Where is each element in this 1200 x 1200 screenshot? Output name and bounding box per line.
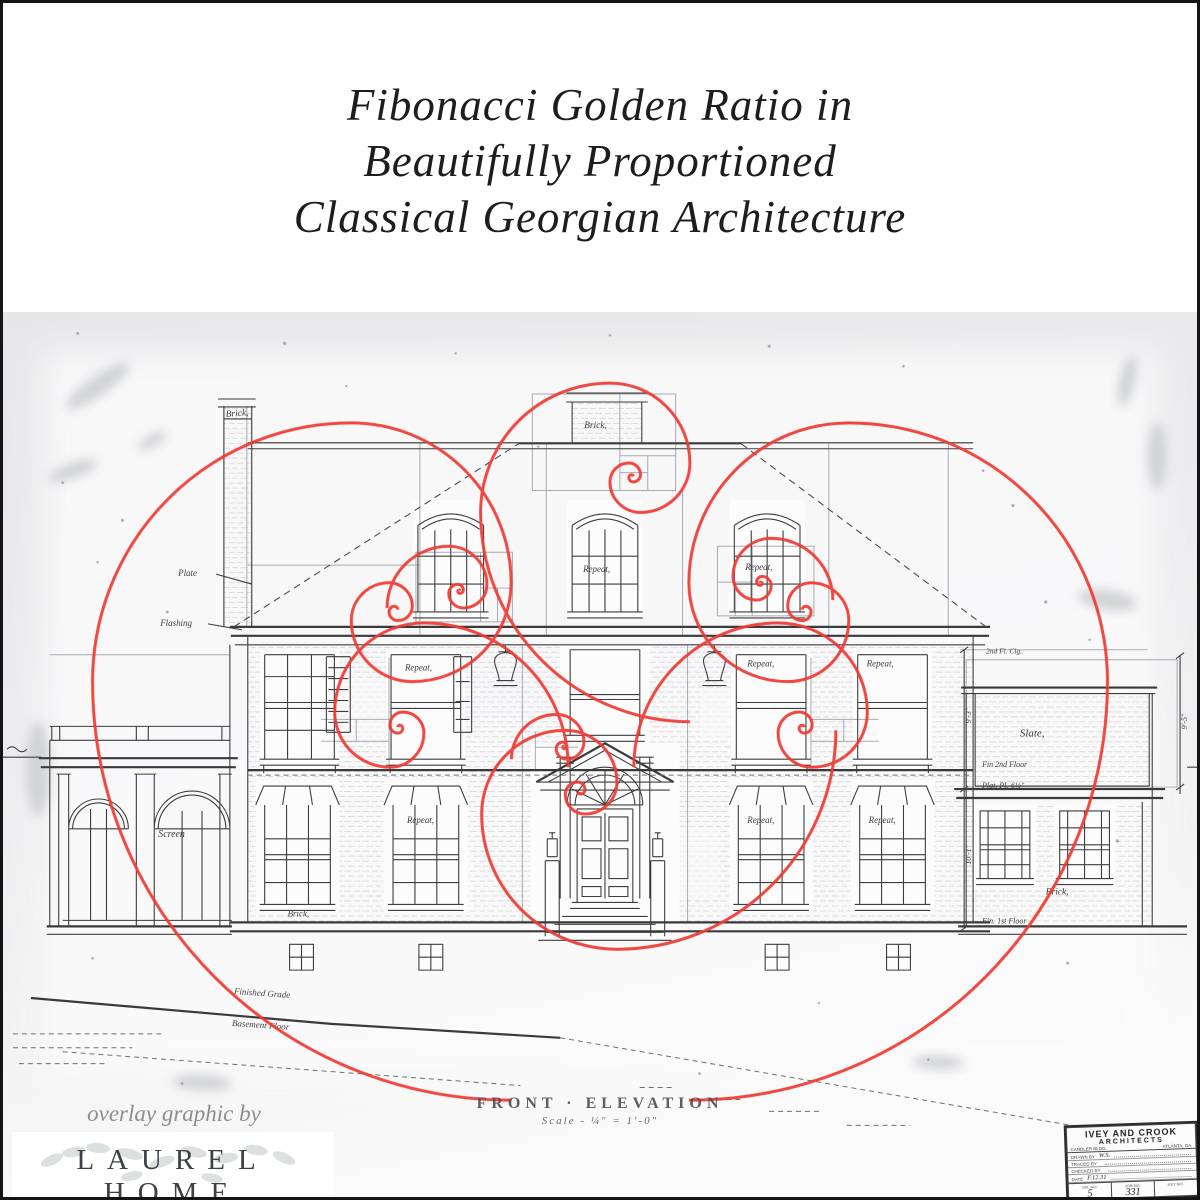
title-line-2: Beautifully Proportioned <box>3 133 1197 189</box>
stamp-cell: KEY NO. <box>1155 1180 1197 1196</box>
laurel-home-logo: LAUREL HOME INTERIOR DESIGN | INSPIRATIO… <box>12 1132 333 1197</box>
label-screen: Screen <box>158 829 185 840</box>
stamp-cell: DR. NO. 5 <box>1069 1183 1112 1199</box>
stamp-cell: JOB NO. 331 <box>1112 1181 1155 1197</box>
label-brick-chimney: Brick, <box>225 408 248 420</box>
stamp-cell-label: KEY NO. <box>1168 1181 1184 1187</box>
stamp-number-cells: DR. NO. 5 JOB NO. 331 KEY NO. <box>1069 1179 1197 1199</box>
label-plat-pl: Plat. Pl.-6½" <box>981 781 1025 790</box>
label-brick-center-chimney: Brick, <box>584 421 607 431</box>
label-repeat: Repeat, <box>746 659 774 669</box>
label-2nd-fl-clg: 2nd Fl. Clg. <box>986 647 1022 656</box>
brand-name: LAUREL HOME <box>12 1144 333 1197</box>
label-repeat: Repeat, <box>746 815 774 825</box>
label-plate: Plate <box>177 568 197 578</box>
label-fin-1st-floor: Fin. 1st Floor <box>981 916 1027 925</box>
stamp-row-value: F.12.31 <box>1087 1174 1107 1182</box>
label-dim-9-3: 9'-3" <box>964 707 973 723</box>
label-fin-2nd-floor: Fin 2nd Floor <box>981 760 1028 769</box>
stamp-row-label: TRACED BY <box>1071 1161 1097 1167</box>
label-flashing: Flashing <box>159 618 192 628</box>
label-repeat: Repeat, <box>744 562 772 572</box>
label-dim-10-1: 10'-1" <box>964 844 973 864</box>
label-repeat: Repeat, <box>582 564 610 574</box>
label-slate: Slate, <box>1020 727 1045 739</box>
credit-prefix: overlay graphic by <box>15 1101 333 1127</box>
label-repeat: Repeat, <box>868 815 896 825</box>
label-repeat: Repeat, <box>406 815 434 825</box>
architect-title-block: IVEY AND CROOK ARCHITECTS CANDLER BLDG. … <box>1064 1121 1200 1200</box>
stamp-row-value: W.S. <box>1099 1152 1111 1159</box>
stamp-row-label: DRAWN BY <box>1071 1154 1095 1160</box>
label-dim-9-5: 9'-5" <box>1180 713 1189 729</box>
stamp-row-label: CHECKED BY <box>1071 1168 1100 1174</box>
stamp-row-label: DATE <box>1072 1177 1084 1182</box>
title-area: Fibonacci Golden Ratio in Beautifully Pr… <box>3 3 1197 312</box>
firm-address-right: ATLANTA, GA. <box>1163 1143 1193 1149</box>
label-repeat: Repeat, <box>866 659 894 669</box>
title-line-3: Classical Georgian Architecture <box>3 189 1197 245</box>
stamp-cell-value: 5 <box>1087 1189 1092 1198</box>
fibonacci-architecture-graphic: Brick, Brick, Plate Flashing Repeat, Rep… <box>0 0 1200 1200</box>
label-brick-wall: Brick, <box>288 908 310 918</box>
title-line-1: Fibonacci Golden Ratio in <box>3 77 1197 133</box>
stamp-cell-value: 331 <box>1125 1188 1140 1198</box>
label-repeat: Repeat, <box>404 663 432 673</box>
